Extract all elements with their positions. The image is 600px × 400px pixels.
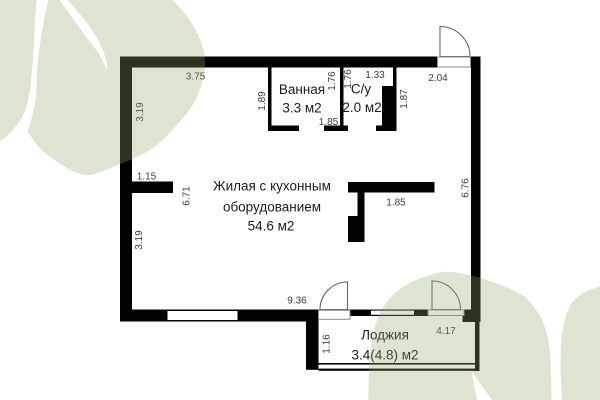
svg-text:1.85: 1.85 [386, 198, 406, 209]
svg-text:1.85: 1.85 [319, 117, 339, 128]
svg-text:2.04: 2.04 [428, 73, 448, 84]
svg-text:1.76: 1.76 [327, 71, 338, 91]
svg-text:Жилая с кухонным: Жилая с кухонным [213, 179, 331, 194]
svg-text:2.0 м2: 2.0 м2 [342, 100, 381, 115]
svg-text:1.76: 1.76 [343, 69, 354, 89]
svg-text:Ванная: Ванная [279, 82, 325, 97]
svg-text:1.15: 1.15 [137, 172, 157, 183]
svg-text:1.16: 1.16 [322, 334, 333, 354]
svg-text:3.19: 3.19 [134, 230, 145, 250]
svg-text:1.87: 1.87 [399, 89, 410, 109]
svg-text:1.89: 1.89 [257, 91, 268, 111]
svg-text:1.33: 1.33 [365, 70, 385, 81]
svg-text:6.71: 6.71 [182, 186, 193, 206]
svg-text:оборудованием: оборудованием [223, 200, 321, 215]
svg-text:6.76: 6.76 [461, 178, 472, 198]
svg-text:54.6 м2: 54.6 м2 [248, 219, 295, 234]
svg-text:3.3 м2: 3.3 м2 [282, 101, 321, 116]
svg-text:9.36: 9.36 [287, 296, 307, 307]
